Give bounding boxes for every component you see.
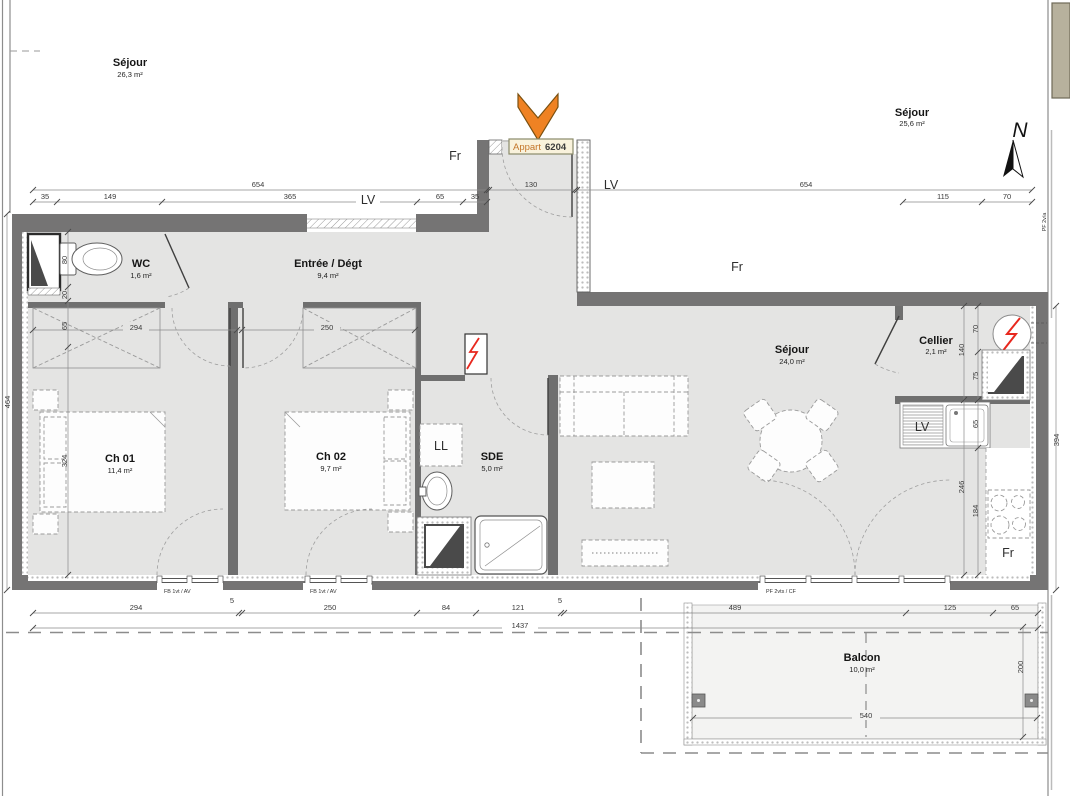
label-fr-top: Fr [449, 149, 461, 163]
tag-window-2: FB 1vt / AV [310, 589, 337, 595]
dim: 121 [512, 603, 525, 612]
adjacent-plan-fragment [1052, 3, 1070, 98]
glazed-sidelight [577, 140, 590, 292]
basin-faucet [419, 487, 426, 496]
dim-bottom-total: 1437 [512, 621, 529, 630]
entry-sill [489, 140, 502, 154]
dim: 84 [442, 603, 450, 612]
dim-ch02-width: 250 [321, 323, 334, 332]
top-window [303, 214, 420, 232]
dim: 65 [436, 192, 444, 201]
dim-balcony-width: 540 [860, 711, 873, 720]
tag-window-1: FB 1vt / AV [164, 589, 191, 595]
room-ch01-name: Ch 01 [105, 453, 135, 465]
dim-entrance: 130 [525, 180, 538, 189]
nightstand [33, 390, 58, 410]
north-label: N [1012, 119, 1028, 142]
room-sejour-area: 24,0 m² [779, 357, 805, 366]
dim: 246 [957, 481, 966, 494]
tag-french-door: PF 2vts / CF [766, 589, 797, 595]
room-balcon-name: Balcon [844, 652, 881, 664]
dim: 115 [937, 192, 949, 201]
floor-plan-drawing: Appart 6204 N [0, 0, 1070, 800]
dim: 20 [60, 291, 69, 299]
dim: 65 [971, 420, 980, 428]
dim: 5 [230, 596, 234, 605]
north-needle-light [1013, 140, 1023, 177]
dim: 250 [324, 603, 337, 612]
dim: 65 [60, 322, 69, 330]
room-neighbor-right-name: Séjour [895, 107, 930, 119]
dim: 140 [957, 344, 966, 357]
label-lv-mid: LV [604, 178, 619, 192]
sink [946, 405, 988, 446]
bed-ch01 [40, 412, 165, 512]
apartment-label-number: 6204 [545, 142, 567, 153]
nightstand [388, 390, 413, 410]
label-dishwasher: LV [915, 420, 930, 434]
room-wc-area: 1,6 m² [130, 271, 152, 280]
dim: 125 [944, 603, 957, 612]
room-neighbor-left-area: 26,3 m² [117, 70, 143, 79]
room-sde-name: SDE [481, 451, 504, 463]
label-fr-mid: Fr [731, 260, 743, 274]
nightstand [33, 514, 58, 534]
dim: 365 [284, 192, 297, 201]
label-lv-top: LV [361, 193, 376, 207]
label-washing-machine: LL [434, 439, 448, 453]
coffee-table [592, 462, 654, 508]
dim: 70 [1003, 192, 1011, 201]
dim-right-total: 394 [1052, 434, 1061, 447]
dim: 294 [130, 603, 143, 612]
dim: 35 [41, 192, 49, 201]
room-neighbor-right-area: 25,6 m² [899, 119, 925, 128]
room-cellier-area: 2,1 m² [925, 347, 947, 356]
room-neighbor-left-name: Séjour [113, 57, 148, 69]
dim: 5 [558, 596, 562, 605]
dim: 35 [471, 192, 479, 201]
room-sejour-name: Séjour [775, 344, 810, 356]
balcony [684, 603, 1046, 745]
room-sde-area: 5,0 m² [481, 464, 503, 473]
room-ch02-area: 9,7 m² [320, 464, 342, 473]
dim-left-total: 464 [3, 396, 12, 409]
closet-ch02 [303, 308, 416, 368]
dim-top-total-left: 654 [252, 180, 265, 189]
dim: 80 [60, 256, 69, 264]
dim: 184 [971, 505, 980, 518]
dim-balcony-depth: 200 [1016, 661, 1025, 674]
dim: 70 [971, 325, 980, 333]
north-arrow: N [1003, 119, 1028, 177]
room-ch02-name: Ch 02 [316, 451, 346, 463]
room-wc-name: WC [132, 258, 150, 270]
north-needle-dark [1003, 140, 1013, 177]
floor-plan-page: Appart 6204 N [0, 0, 1070, 800]
room-entree-area: 9,4 m² [317, 271, 339, 280]
dim-top-total-right: 654 [800, 180, 813, 189]
tag-side: PF 2v/a [1042, 213, 1048, 232]
room-cellier-name: Cellier [919, 335, 953, 347]
room-ch01-area: 11,4 m² [108, 466, 133, 475]
nightstand [388, 512, 413, 532]
label-fridge: Fr [1002, 546, 1014, 560]
toilet-bowl [72, 243, 122, 275]
room-entree-name: Entrée / Dégt [294, 258, 362, 270]
dim: 324 [60, 455, 69, 468]
room-balcon-area: 10,0 m² [849, 665, 875, 674]
dim-ch01-width: 294 [130, 323, 143, 332]
apartment-locator: Appart 6204 [509, 94, 573, 154]
dim: 65 [1011, 603, 1019, 612]
dim: 149 [104, 192, 117, 201]
dim: 489 [729, 603, 742, 612]
dim: 75 [971, 372, 980, 380]
locator-arrow-icon [518, 94, 558, 140]
apartment-label-prefix: Appart [513, 142, 541, 153]
